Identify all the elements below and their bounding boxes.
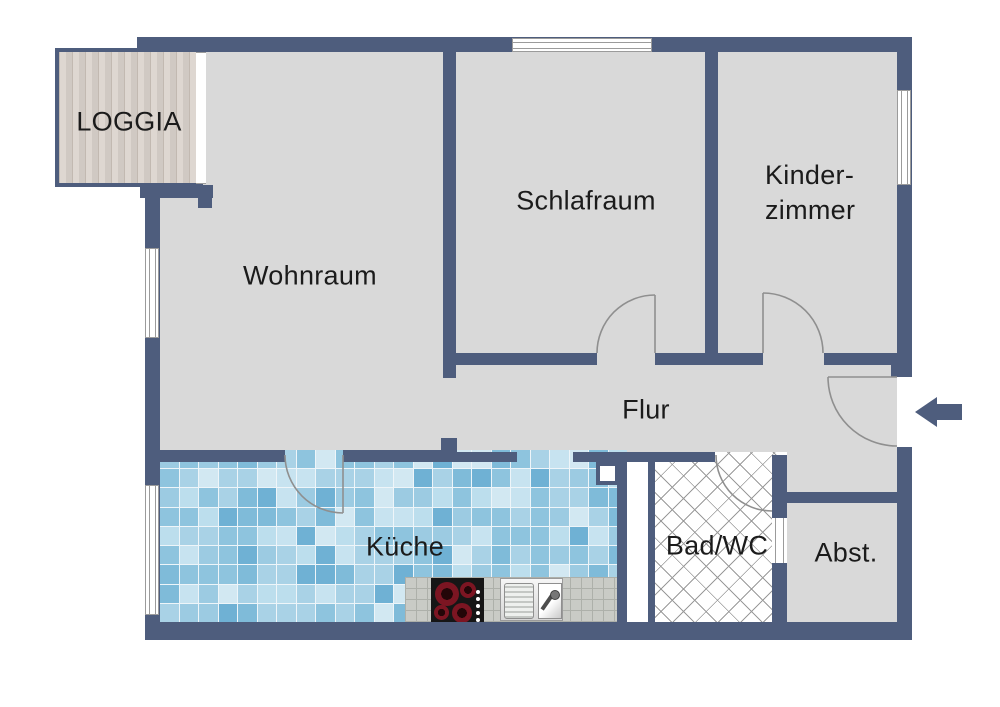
burner-small-top: [460, 582, 476, 598]
kitchen-tile: [316, 585, 335, 603]
kitchen-tile: [219, 604, 238, 622]
kitchen-tile: [316, 604, 335, 622]
kitchen-tile: [316, 450, 335, 468]
kitchen-tile: [219, 508, 238, 526]
kitchen-tile: [238, 604, 257, 622]
kitchen-tile: [199, 488, 218, 506]
vent-shaft-box: [596, 462, 619, 485]
kitchen-tile: [550, 450, 569, 468]
kitchen-tile: [453, 488, 472, 506]
kitchen-tile: [219, 565, 238, 583]
kitchen-tile: [258, 604, 277, 622]
kitchen-tile: [433, 508, 452, 526]
wall-kueche-pillar: [441, 438, 457, 462]
kitchen-tile: [199, 469, 218, 487]
kitchen-tile: [589, 527, 608, 545]
kitchen-tile: [199, 508, 218, 526]
kitchen-tile: [453, 527, 472, 545]
kitchen-tile: [258, 527, 277, 545]
kitchen-tile: [238, 585, 257, 603]
kitchen-tile: [589, 508, 608, 526]
kitchen-tile: [219, 469, 238, 487]
kitchen-tile: [258, 488, 277, 506]
kitchen-tile: [375, 585, 394, 603]
label-wohnraum: Wohnraum: [243, 261, 377, 292]
kitchen-tile: [414, 488, 433, 506]
kitchen-tile: [472, 469, 491, 487]
kitchen-tile: [375, 488, 394, 506]
kitchen-tile: [297, 604, 316, 622]
kitchen-tile: [199, 604, 218, 622]
kitchen-tile: [492, 508, 511, 526]
burner-small-bottom: [434, 605, 449, 620]
sink-drainboard: [504, 583, 534, 619]
label-abst: Abst.: [814, 538, 877, 569]
kitchen-tile: [433, 469, 452, 487]
kitchen-tile: [297, 469, 316, 487]
kitchen-tile: [550, 469, 569, 487]
kitchen-tile: [550, 527, 569, 545]
kitchen-tile: [258, 469, 277, 487]
kitchen-tile: [336, 508, 355, 526]
kitchen-tile: [492, 546, 511, 564]
kitchen-tile: [219, 585, 238, 603]
kitchen-tile: [180, 585, 199, 603]
kitchen-tile: [160, 469, 179, 487]
opening-tick: [775, 518, 776, 563]
kitchen-tile: [160, 508, 179, 526]
wall-flur-a: [456, 353, 597, 365]
kitchen-tile: [453, 546, 472, 564]
kitchen-tile: [336, 469, 355, 487]
kitchen-tile: [433, 488, 452, 506]
wall-right-lower: [897, 447, 912, 640]
kitchen-tile: [414, 508, 433, 526]
kitchen-tile: [199, 546, 218, 564]
kitchen-tile: [316, 565, 335, 583]
label-badwc: Bad/WC: [666, 531, 768, 562]
kitchen-tile: [297, 450, 316, 468]
kitchen-tile: [258, 508, 277, 526]
kitchen-tile: [277, 565, 296, 583]
kitchen-tile: [297, 527, 316, 545]
kitchen-tile: [355, 565, 374, 583]
wall-wohnraum-schlafraum: [443, 52, 456, 378]
label-kinderzimmer-line1: Kinder-: [765, 158, 855, 193]
wall-badwc-right-upper: [772, 455, 787, 518]
label-kueche: Küche: [366, 532, 444, 563]
kitchen-tile: [336, 546, 355, 564]
kitchen-tile: [511, 527, 530, 545]
kitchen-tile: [258, 565, 277, 583]
kitchen-tile: [180, 565, 199, 583]
wall-schlafraum-kinderzimmer: [705, 52, 718, 365]
kitchen-tile: [550, 508, 569, 526]
kitchen-tile: [453, 508, 472, 526]
floor-plan: LOGGIA Wohnraum Schlafraum Kinder- zimme…: [0, 0, 1000, 707]
wall-kueche-c: [457, 452, 517, 462]
kitchen-tile: [238, 527, 257, 545]
kitchen-tile: [316, 546, 335, 564]
kitchen-tile: [316, 508, 335, 526]
opening-tick: [783, 518, 784, 563]
kitchen-tile: [297, 585, 316, 603]
kitchen-tile: [336, 604, 355, 622]
kitchen-tile: [550, 546, 569, 564]
kitchen-tile: [238, 508, 257, 526]
kitchen-tile: [160, 565, 179, 583]
kitchen-tile: [160, 604, 179, 622]
kitchen-tile: [297, 488, 316, 506]
loggia-glass-front: [196, 52, 206, 184]
kitchen-tile: [199, 585, 218, 603]
kitchen-tile: [531, 450, 550, 468]
kitchen-tile: [472, 546, 491, 564]
wall-flur-c: [824, 353, 912, 365]
kitchen-tile: [219, 488, 238, 506]
kitchen-tile: [316, 527, 335, 545]
kitchen-tile: [492, 527, 511, 545]
wall-kueche-b: [343, 450, 441, 462]
burner-large-top: [435, 582, 459, 606]
kitchen-tile: [180, 546, 199, 564]
wall-flur-b: [655, 353, 763, 365]
kitchen-tile: [277, 469, 296, 487]
kitchen-tile: [336, 565, 355, 583]
kitchen-tile: [336, 527, 355, 545]
kitchen-tile: [277, 527, 296, 545]
kitchen-tile: [414, 469, 433, 487]
kitchen-tile: [472, 508, 491, 526]
kitchen-tile: [550, 488, 569, 506]
kitchen-tile: [277, 488, 296, 506]
kitchen-tile: [336, 585, 355, 603]
kitchen-tile: [219, 546, 238, 564]
label-kinderzimmer: Kinder- zimmer: [765, 158, 855, 228]
kitchen-tile: [394, 488, 413, 506]
kitchen-tile: [589, 488, 608, 506]
wall-kueche-d: [573, 452, 715, 462]
kitchen-tile: [258, 585, 277, 603]
kitchen-tile: [355, 604, 374, 622]
kitchen-tile: [160, 527, 179, 545]
kitchen-tile: [570, 488, 589, 506]
kitchen-tile: [511, 546, 530, 564]
wall-under-loggia-nub: [198, 198, 212, 208]
wall-abst-top: [787, 492, 897, 503]
kitchen-tile: [511, 508, 530, 526]
label-schlafraum: Schlafraum: [516, 186, 656, 217]
kitchen-tile: [238, 469, 257, 487]
kitchen-tile: [297, 508, 316, 526]
kitchen-tile: [180, 488, 199, 506]
kitchen-tile: [180, 527, 199, 545]
arrow-left-icon: [915, 397, 962, 427]
window-top-schlafraum: [512, 38, 652, 52]
kitchen-tile: [199, 527, 218, 545]
kitchen-tile: [492, 488, 511, 506]
kitchen-tile: [570, 527, 589, 545]
kitchen-tile: [277, 508, 296, 526]
kitchen-tile: [375, 565, 394, 583]
kitchen-tile: [180, 508, 199, 526]
window-left-kueche: [145, 485, 159, 615]
entry-jamb: [891, 365, 912, 377]
kitchen-tile: [570, 469, 589, 487]
service-shaft-strip: [627, 460, 648, 622]
kitchen-tile: [375, 604, 394, 622]
wall-kueche-a: [160, 450, 285, 462]
kitchen-tile: [316, 488, 335, 506]
label-flur: Flur: [622, 395, 670, 426]
kitchen-tile: [531, 546, 550, 564]
wall-badwc-right-lower: [772, 563, 787, 622]
kitchen-tile: [589, 546, 608, 564]
kitchen-tile: [336, 488, 355, 506]
kitchen-tile: [160, 488, 179, 506]
kitchen-tile: [238, 488, 257, 506]
burner-large-bottom: [452, 603, 472, 623]
kitchen-sink-icon: [500, 578, 563, 621]
wall-right-upper: [897, 37, 912, 377]
faucet-knob: [550, 590, 560, 600]
kitchen-tile: [511, 469, 530, 487]
kitchen-tile: [199, 565, 218, 583]
cooktop-icon: [431, 578, 484, 623]
wall-badwc-left: [648, 452, 655, 622]
kitchen-tile: [355, 488, 374, 506]
kitchen-tile: [375, 469, 394, 487]
kitchen-tile: [492, 469, 511, 487]
wall-bottom: [145, 622, 912, 640]
kitchen-tile: [219, 527, 238, 545]
kitchen-tile: [531, 527, 550, 545]
kitchen-tile: [531, 508, 550, 526]
kitchen-tile: [355, 508, 374, 526]
window-left-wohnraum: [145, 248, 159, 338]
kitchen-tile: [472, 527, 491, 545]
kitchen-tile: [570, 546, 589, 564]
kitchen-tile: [394, 469, 413, 487]
kitchen-tile: [531, 469, 550, 487]
sink-bowl: [538, 583, 562, 619]
kitchen-tile: [316, 469, 335, 487]
kitchen-tile: [394, 508, 413, 526]
kitchen-tile: [238, 546, 257, 564]
kitchen-tile: [238, 565, 257, 583]
kitchen-tile: [570, 508, 589, 526]
kitchen-tile: [277, 546, 296, 564]
kitchen-tile: [453, 469, 472, 487]
window-right-kinderzimmer: [897, 90, 911, 185]
kitchen-tile: [472, 488, 491, 506]
kitchen-tile: [277, 585, 296, 603]
kitchen-tile: [258, 546, 277, 564]
kitchen-tile: [355, 585, 374, 603]
kitchen-tile: [375, 508, 394, 526]
kitchen-tile: [297, 565, 316, 583]
label-loggia: LOGGIA: [76, 107, 181, 138]
kitchen-tile: [180, 604, 199, 622]
kitchen-tile: [531, 488, 550, 506]
kitchen-tile: [511, 488, 530, 506]
label-kinderzimmer-line2: zimmer: [765, 193, 855, 228]
kitchen-tile: [160, 546, 179, 564]
kitchen-tile: [297, 546, 316, 564]
kitchen-tile: [277, 604, 296, 622]
kitchen-tile: [355, 469, 374, 487]
kitchen-tile: [180, 469, 199, 487]
kitchen-tile: [160, 585, 179, 603]
